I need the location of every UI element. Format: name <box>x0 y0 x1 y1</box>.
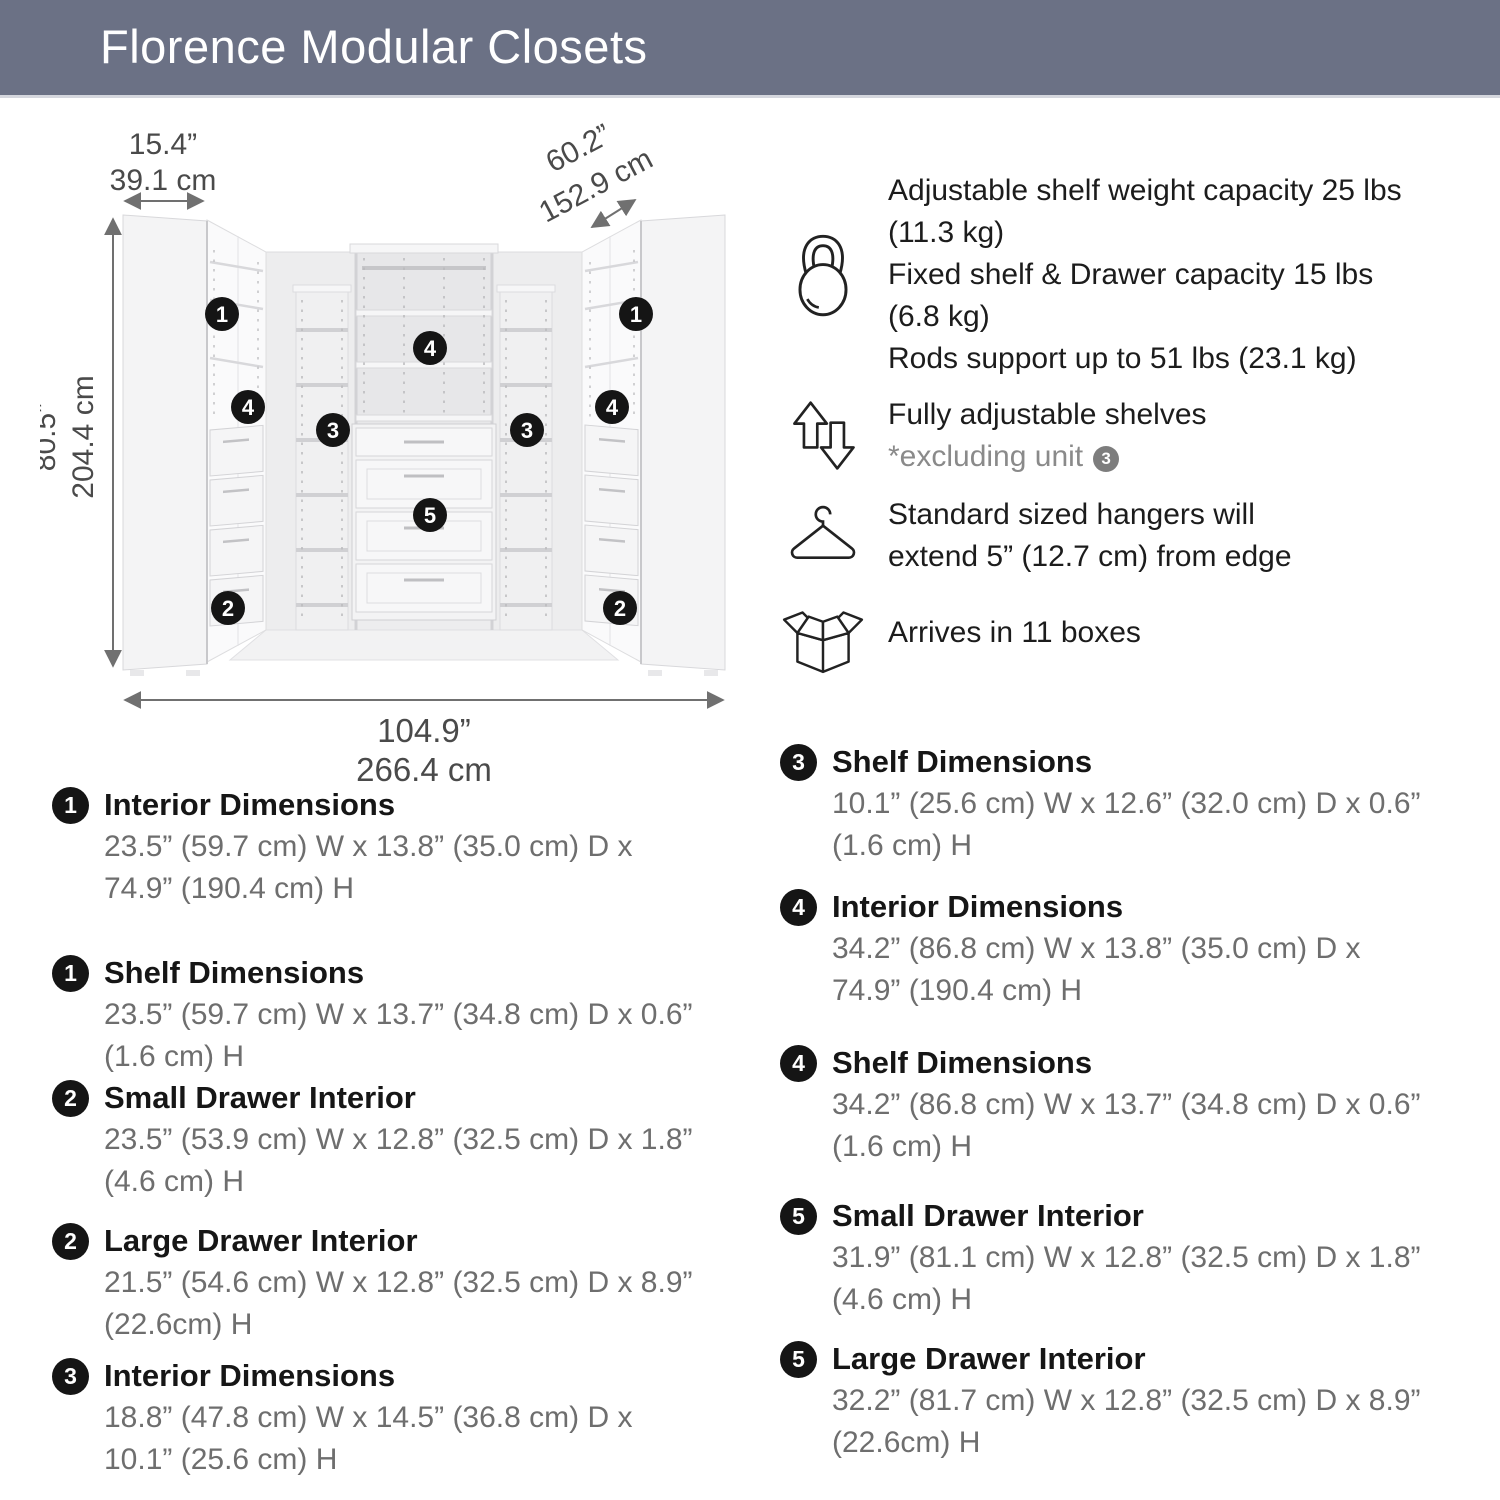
dimension-label-height-in: 80.5” <box>40 403 62 471</box>
callout-badge-4-right: 4 <box>595 390 629 424</box>
spec-badge: 1 <box>52 787 89 824</box>
svg-text:4: 4 <box>606 395 619 420</box>
spec-badge: 4 <box>780 889 817 926</box>
feature-text: Arrives in 11 boxes <box>888 612 1141 654</box>
svg-text:1: 1 <box>630 302 642 327</box>
spec-title: Interior Dimensions <box>104 1355 704 1397</box>
spec-dims: 23.5” (59.7 cm) W x 13.8” (35.0 cm) D x … <box>104 826 704 910</box>
spec-dims: 34.2” (86.8 cm) W x 13.7” (34.8 cm) D x … <box>832 1084 1432 1168</box>
spec-dims: 31.9” (81.1 cm) W x 12.8” (32.5 cm) D x … <box>832 1237 1432 1321</box>
spec-badge: 5 <box>780 1341 817 1378</box>
spec-badge: 2 <box>52 1080 89 1117</box>
closet-outer-panel-left <box>123 215 207 676</box>
callout-badge-3-left: 3 <box>316 413 350 447</box>
spec-dims: 34.2” (86.8 cm) W x 13.8” (35.0 cm) D x … <box>832 928 1432 1012</box>
spec-badge: 3 <box>52 1358 89 1395</box>
svg-text:4: 4 <box>242 395 255 420</box>
spec-item: 2 Large Drawer Interior 21.5” (54.6 cm) … <box>52 1220 704 1346</box>
spec-item: 1 Shelf Dimensions 23.5” (59.7 cm) W x 1… <box>52 952 704 1078</box>
spec-item: 3 Interior Dimensions 18.8” (47.8 cm) W … <box>52 1355 704 1481</box>
feature-adjustable-shelves: Fully adjustable shelves *excluding unit… <box>782 390 1207 482</box>
closet-shelf-tower-right <box>497 285 555 630</box>
header-bar: Florence Modular Closets <box>0 0 1500 98</box>
page-title: Florence Modular Closets <box>0 0 1500 93</box>
feature-hangers: Standard sized hangers will extend 5” (1… <box>782 494 1338 578</box>
spec-dims: 21.5” (54.6 cm) W x 12.8” (32.5 cm) D x … <box>104 1262 704 1346</box>
callout-badge-2-right: 2 <box>603 591 637 625</box>
feature-line: Rods support up to 51 lbs (23.1 kg) <box>888 338 1408 380</box>
spec-item: 3 Shelf Dimensions 10.1” (25.6 cm) W x 1… <box>780 741 1432 867</box>
feature-title: Fully adjustable shelves <box>888 394 1207 436</box>
svg-text:4: 4 <box>424 336 437 361</box>
callout-badge-2-left: 2 <box>211 591 245 625</box>
kettlebell-icon <box>782 230 864 320</box>
spec-title: Small Drawer Interior <box>832 1195 1432 1237</box>
spec-title: Shelf Dimensions <box>832 1042 1432 1084</box>
feature-text: Standard sized hangers will extend 5” (1… <box>888 494 1338 578</box>
box-icon <box>782 590 864 676</box>
svg-text:2: 2 <box>222 596 234 621</box>
callout-badge-1-right: 1 <box>619 297 653 331</box>
spec-badge: 5 <box>780 1198 817 1235</box>
spec-title: Shelf Dimensions <box>832 741 1432 783</box>
svg-text:2: 2 <box>614 596 626 621</box>
spec-item: 4 Shelf Dimensions 34.2” (86.8 cm) W x 1… <box>780 1042 1432 1168</box>
dimension-label-bottom-in: 104.9” <box>377 712 471 749</box>
svg-text:3: 3 <box>521 418 533 443</box>
adjustable-arrows-icon <box>782 390 864 482</box>
feature-line: Fixed shelf & Drawer capacity 15 lbs (6.… <box>888 254 1408 338</box>
spec-dims: 23.5” (53.9 cm) W x 12.8” (32.5 cm) D x … <box>104 1119 704 1203</box>
spec-title: Interior Dimensions <box>832 886 1432 928</box>
spec-title: Large Drawer Interior <box>832 1338 1432 1380</box>
dimension-label-bottom-cm: 266.4 cm <box>356 751 492 788</box>
spec-dims: 23.5” (59.7 cm) W x 13.7” (34.8 cm) D x … <box>104 994 704 1078</box>
closet-shelf-tower-left <box>293 285 351 630</box>
dimension-label-top-cm: 39.1 cm <box>110 164 217 197</box>
callout-badge-4-center: 4 <box>413 331 447 365</box>
feature-boxes: Arrives in 11 boxes <box>782 590 1141 676</box>
dimension-label-top-in: 15.4” <box>129 128 197 161</box>
spec-badge: 2 <box>52 1223 89 1260</box>
spec-item: 1 Interior Dimensions 23.5” (59.7 cm) W … <box>52 784 704 910</box>
callout-badge-5-center: 5 <box>413 498 447 532</box>
spec-badge: 3 <box>780 744 817 781</box>
spec-title: Shelf Dimensions <box>104 952 704 994</box>
feature-weight-capacity: Adjustable shelf weight capacity 25 lbs … <box>782 170 1408 380</box>
spec-dims: 10.1” (25.6 cm) W x 12.6” (32.0 cm) D x … <box>832 783 1432 867</box>
feature-line: Adjustable shelf weight capacity 25 lbs … <box>888 170 1408 254</box>
spec-item: 5 Small Drawer Interior 31.9” (81.1 cm) … <box>780 1195 1432 1321</box>
spec-item: 2 Small Drawer Interior 23.5” (53.9 cm) … <box>52 1077 704 1203</box>
hanger-icon <box>782 504 864 568</box>
callout-badge-1-left: 1 <box>205 297 239 331</box>
svg-text:1: 1 <box>216 302 228 327</box>
note-callout-badge: 3 <box>1093 446 1119 472</box>
dimension-arrow-angled <box>592 200 635 227</box>
dimension-label-height-cm: 204.4 cm <box>67 375 100 498</box>
spec-item: 5 Large Drawer Interior 32.2” (81.7 cm) … <box>780 1338 1432 1464</box>
spec-badge: 4 <box>780 1045 817 1082</box>
spec-title: Small Drawer Interior <box>104 1077 704 1119</box>
svg-text:5: 5 <box>424 503 436 528</box>
closet-outer-panel-right <box>641 215 725 676</box>
callout-badge-4-left: 4 <box>231 390 265 424</box>
svg-text:3: 3 <box>327 418 339 443</box>
spec-dims: 32.2” (81.7 cm) W x 12.8” (32.5 cm) D x … <box>832 1380 1432 1464</box>
spec-item: 4 Interior Dimensions 34.2” (86.8 cm) W … <box>780 886 1432 1012</box>
callout-badge-3-right: 3 <box>510 413 544 447</box>
spec-title: Large Drawer Interior <box>104 1220 704 1262</box>
spec-title: Interior Dimensions <box>104 784 704 826</box>
spec-badge: 1 <box>52 955 89 992</box>
feature-note: *excluding unit3 <box>888 436 1207 478</box>
spec-dims: 18.8” (47.8 cm) W x 14.5” (36.8 cm) D x … <box>104 1397 704 1481</box>
closet-diagram: 15.4” 39.1 cm 60.2” 152.9 cm 80.5” 204.4… <box>40 120 760 810</box>
